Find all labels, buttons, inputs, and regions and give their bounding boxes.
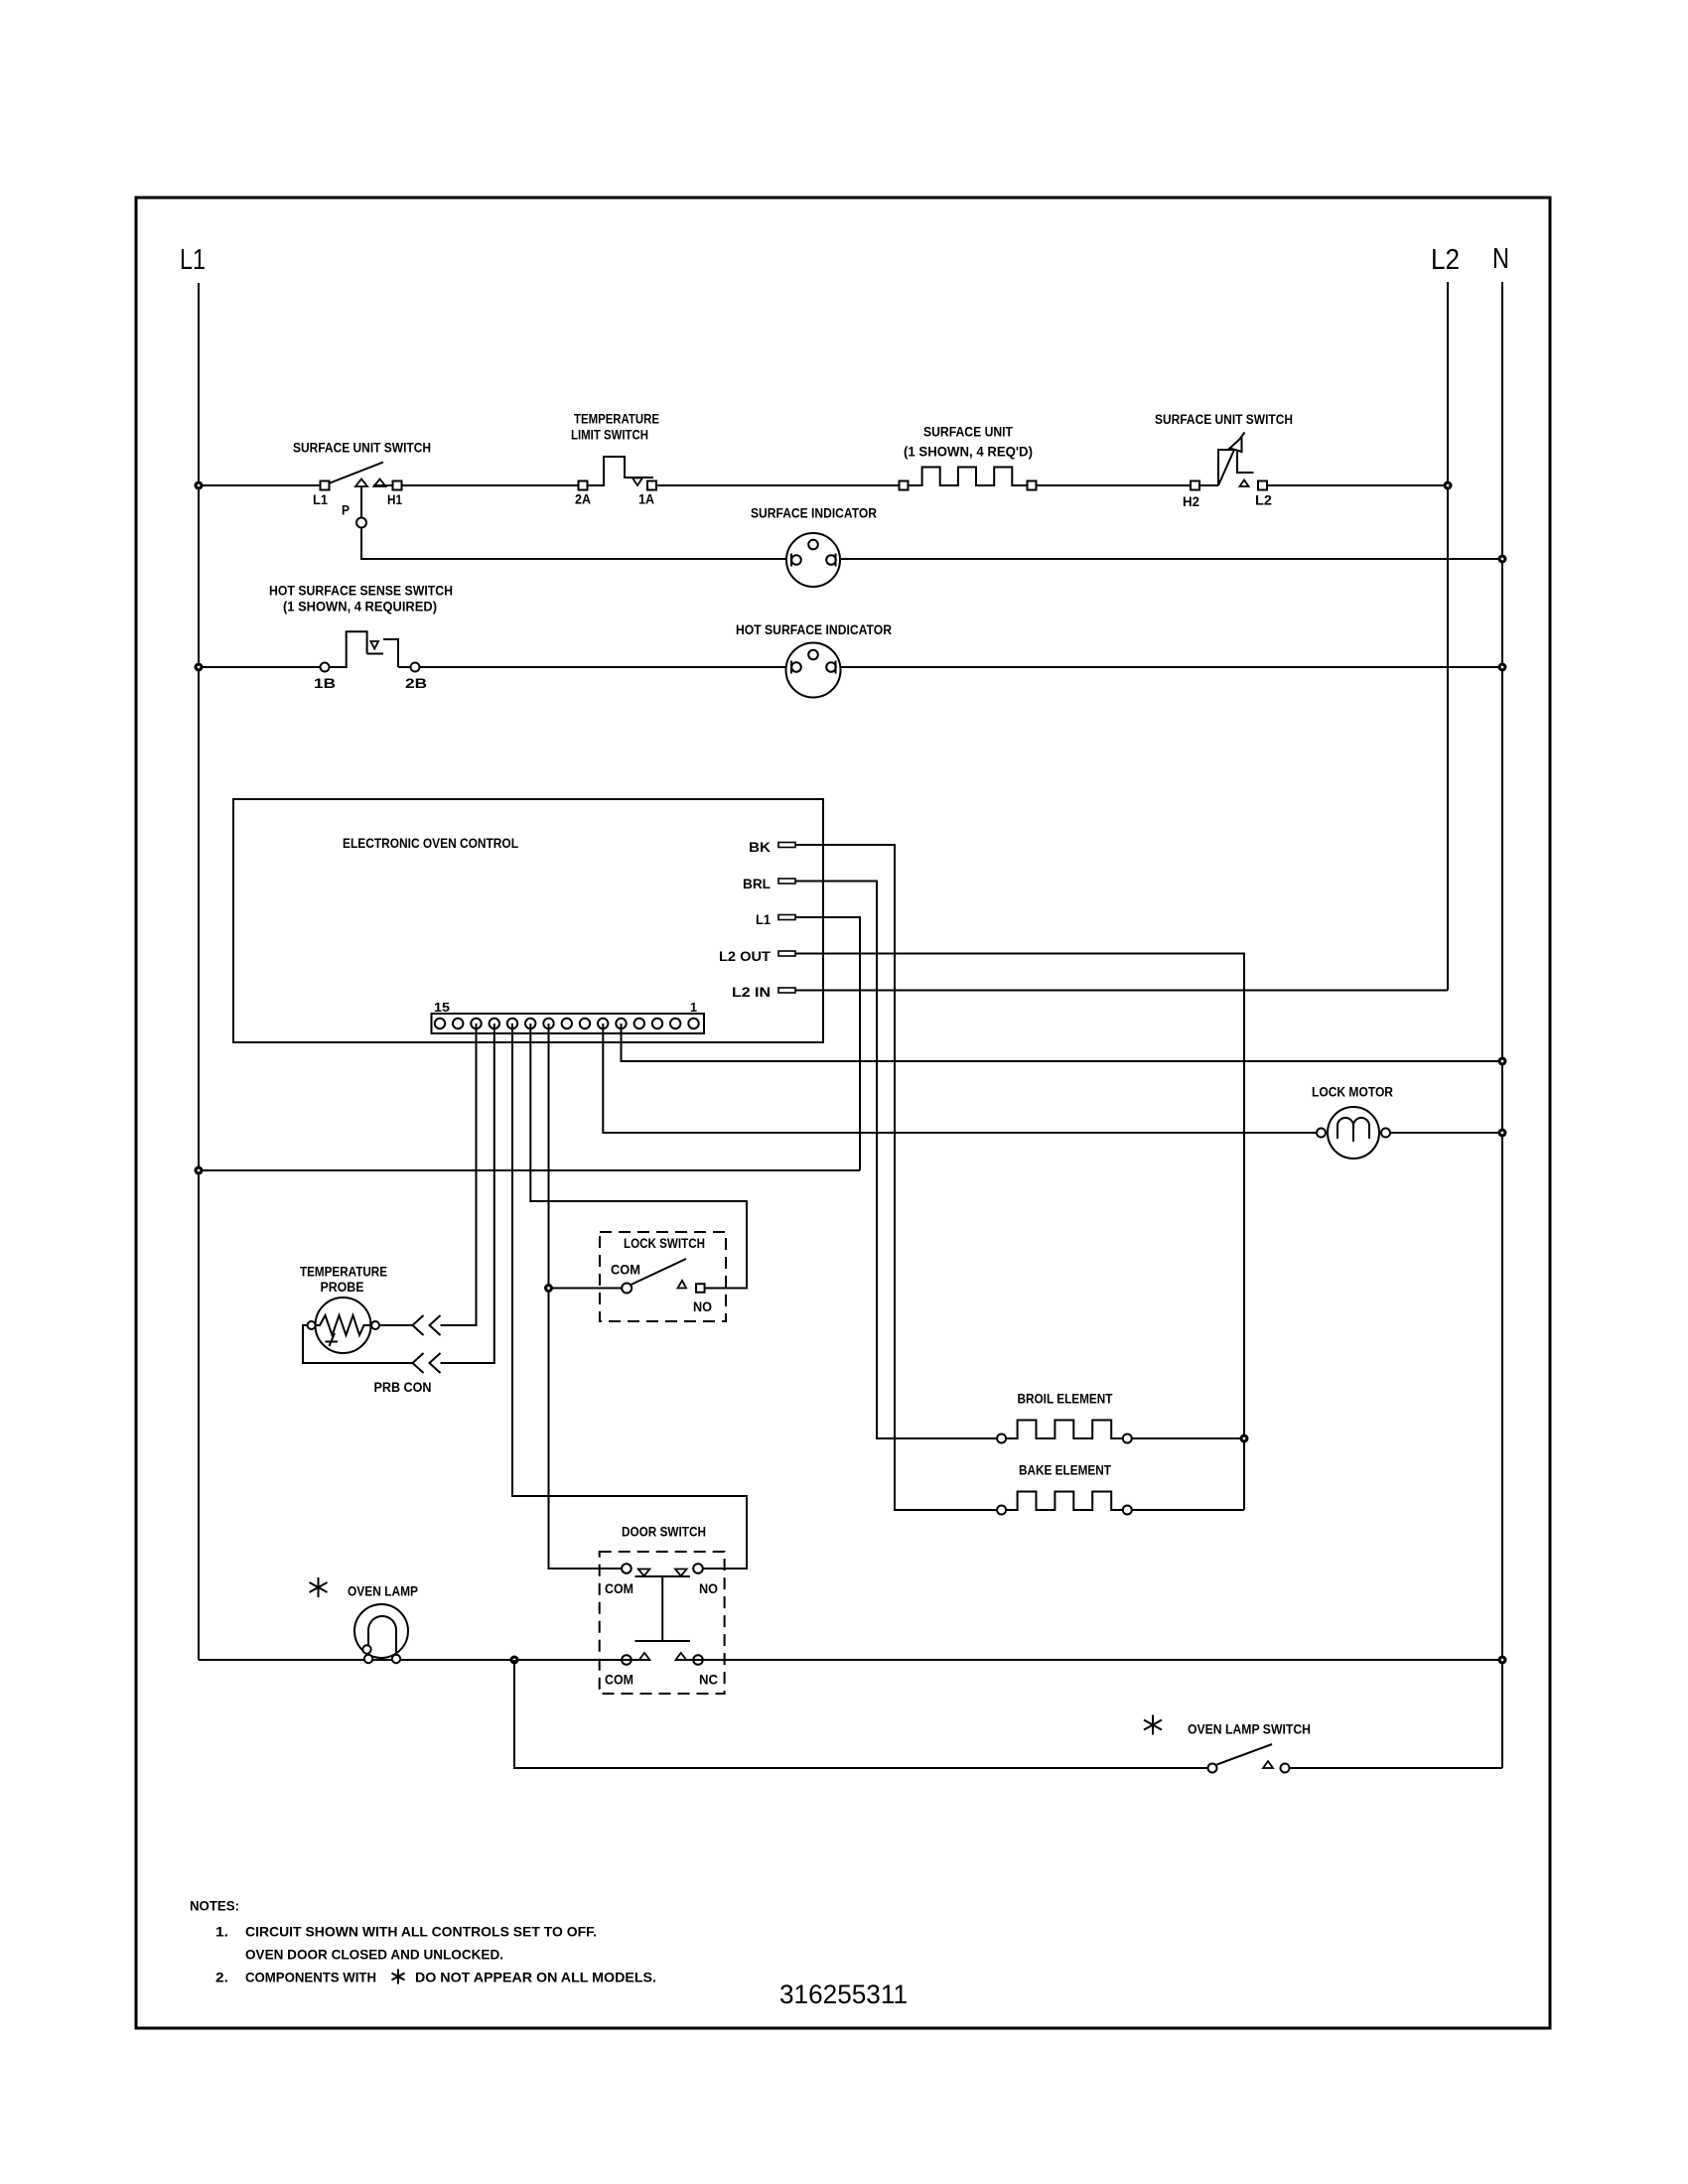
svg-text:2A: 2A — [575, 492, 591, 507]
svg-text:L2: L2 — [1255, 493, 1272, 508]
svg-text:PROBE: PROBE — [321, 1280, 364, 1295]
svg-text:BK: BK — [749, 840, 771, 855]
svg-text:N: N — [1492, 243, 1509, 275]
svg-text:DO NOT APPEAR ON ALL MODELS.: DO NOT APPEAR ON ALL MODELS. — [415, 1970, 656, 1985]
svg-text:1: 1 — [690, 1000, 697, 1015]
svg-text:L1: L1 — [313, 492, 328, 507]
svg-text:15: 15 — [434, 1000, 450, 1015]
svg-text:316255311: 316255311 — [779, 1979, 908, 2009]
svg-text:SURFACE UNIT: SURFACE UNIT — [923, 425, 1014, 440]
svg-text:L2: L2 — [1431, 244, 1460, 276]
svg-text:LOCK MOTOR: LOCK MOTOR — [1312, 1085, 1393, 1100]
svg-text:1B: 1B — [314, 676, 336, 691]
svg-text:1A: 1A — [638, 492, 654, 507]
svg-text:NC: NC — [699, 1673, 718, 1688]
svg-text:NO: NO — [693, 1299, 712, 1314]
svg-text:OVEN LAMP SWITCH: OVEN LAMP SWITCH — [1188, 1722, 1311, 1737]
svg-text:NOTES:: NOTES: — [190, 1898, 239, 1914]
svg-text:BROIL ELEMENT: BROIL ELEMENT — [1018, 1392, 1114, 1407]
svg-text:LOCK SWITCH: LOCK SWITCH — [624, 1236, 705, 1251]
svg-text:1.: 1. — [215, 1924, 228, 1940]
svg-text:CIRCUIT SHOWN WITH ALL CONTROL: CIRCUIT SHOWN WITH ALL CONTROLS SET TO O… — [245, 1924, 597, 1940]
svg-text:LIMIT SWITCH: LIMIT SWITCH — [571, 428, 648, 443]
svg-text:(1 SHOWN, 4 REQ'D): (1 SHOWN, 4 REQ'D) — [904, 445, 1033, 460]
svg-text:HOT SURFACE SENSE SWITCH: HOT SURFACE SENSE SWITCH — [269, 584, 453, 599]
svg-text:DOOR SWITCH: DOOR SWITCH — [622, 1525, 706, 1540]
svg-text:BAKE ELEMENT: BAKE ELEMENT — [1019, 1463, 1112, 1478]
svg-text:OVEN DOOR CLOSED AND UNLOCKED.: OVEN DOOR CLOSED AND UNLOCKED. — [245, 1947, 503, 1963]
svg-text:(1 SHOWN, 4 REQUIRED): (1 SHOWN, 4 REQUIRED) — [283, 600, 437, 614]
svg-text:2.: 2. — [215, 1970, 228, 1985]
svg-text:PRB CON: PRB CON — [374, 1380, 432, 1395]
svg-text:SURFACE UNIT SWITCH: SURFACE UNIT SWITCH — [1155, 412, 1293, 427]
svg-text:L1: L1 — [756, 912, 771, 927]
svg-text:OVEN LAMP: OVEN LAMP — [348, 1584, 418, 1599]
svg-text:COMPONENTS WITH: COMPONENTS WITH — [245, 1970, 376, 1985]
svg-text:ELECTRONIC OVEN CONTROL: ELECTRONIC OVEN CONTROL — [343, 835, 518, 851]
svg-text:TEMPERATURE: TEMPERATURE — [300, 1265, 387, 1280]
svg-text:COM: COM — [611, 1263, 640, 1278]
svg-text:P: P — [342, 503, 350, 518]
svg-text:BRL: BRL — [743, 877, 771, 891]
svg-text:HOT SURFACE INDICATOR: HOT SURFACE INDICATOR — [736, 622, 892, 637]
svg-text:L2 IN: L2 IN — [732, 985, 771, 1000]
svg-text:L1: L1 — [180, 244, 206, 276]
svg-text:TEMPERATURE: TEMPERATURE — [574, 412, 659, 427]
svg-text:H2: H2 — [1183, 494, 1199, 509]
svg-text:SURFACE INDICATOR: SURFACE INDICATOR — [751, 506, 877, 521]
svg-text:SURFACE UNIT SWITCH: SURFACE UNIT SWITCH — [293, 441, 431, 456]
svg-text:NO: NO — [699, 1581, 718, 1596]
svg-text:L2 OUT: L2 OUT — [719, 949, 772, 964]
svg-text:H1: H1 — [387, 492, 402, 507]
svg-text:COM: COM — [605, 1581, 633, 1596]
svg-text:2B: 2B — [405, 676, 427, 691]
svg-text:COM: COM — [605, 1673, 633, 1688]
